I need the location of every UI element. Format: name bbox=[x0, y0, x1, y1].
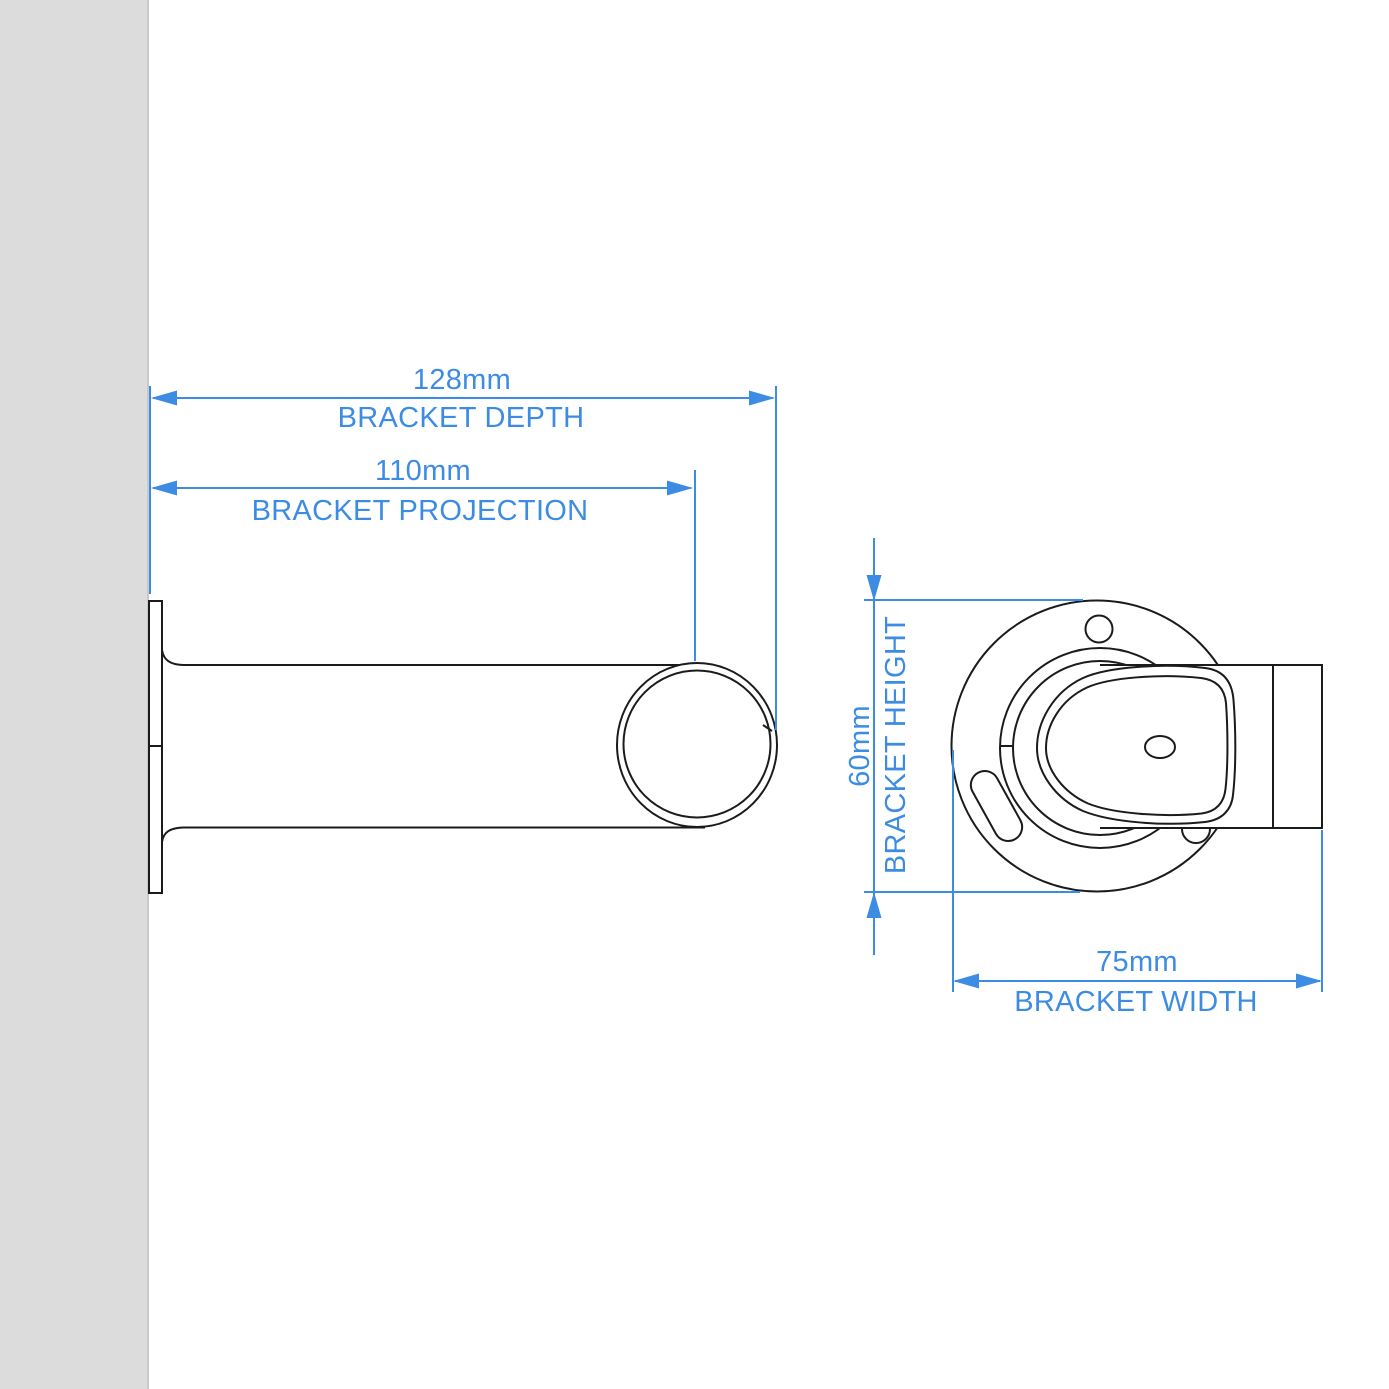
bracket-side-view bbox=[149, 601, 777, 893]
front-screw-hole-top bbox=[1086, 616, 1113, 643]
arrow-width-right bbox=[1296, 974, 1322, 989]
dim-width-value: 75mm bbox=[1096, 947, 1178, 979]
dim-depth-label: BRACKET DEPTH bbox=[338, 403, 585, 435]
front-cup-center-hole bbox=[1145, 736, 1175, 758]
arrow-depth-left bbox=[151, 391, 177, 406]
dim-projection-value: 110mm bbox=[375, 456, 471, 488]
side-stem-top-edge bbox=[162, 650, 700, 665]
side-stem-bottom-edge bbox=[162, 828, 705, 843]
dim-projection-label: BRACKET PROJECTION bbox=[252, 496, 589, 528]
dim-width-label: BRACKET WIDTH bbox=[1014, 987, 1257, 1019]
arrow-width-left bbox=[953, 974, 979, 989]
front-cup-rim-outer bbox=[1037, 666, 1235, 824]
arrow-height-top bbox=[867, 575, 882, 601]
arrow-projection-left bbox=[151, 481, 177, 496]
bracket-front-view bbox=[952, 601, 1323, 892]
dim-height-value: 60mm bbox=[845, 705, 877, 787]
technical-drawing-canvas: 128mm BRACKET DEPTH 110mm BRACKET PROJEC… bbox=[0, 0, 1389, 1389]
dim-depth-value: 128mm bbox=[413, 365, 511, 397]
dim-height-label: BRACKET HEIGHT bbox=[881, 616, 913, 874]
bracket-line-drawing bbox=[0, 0, 1389, 1389]
side-cup-outer-rim bbox=[617, 663, 777, 827]
arrow-depth-right bbox=[749, 391, 775, 406]
arrow-projection-right bbox=[667, 481, 693, 496]
arrow-height-bottom bbox=[867, 892, 882, 918]
